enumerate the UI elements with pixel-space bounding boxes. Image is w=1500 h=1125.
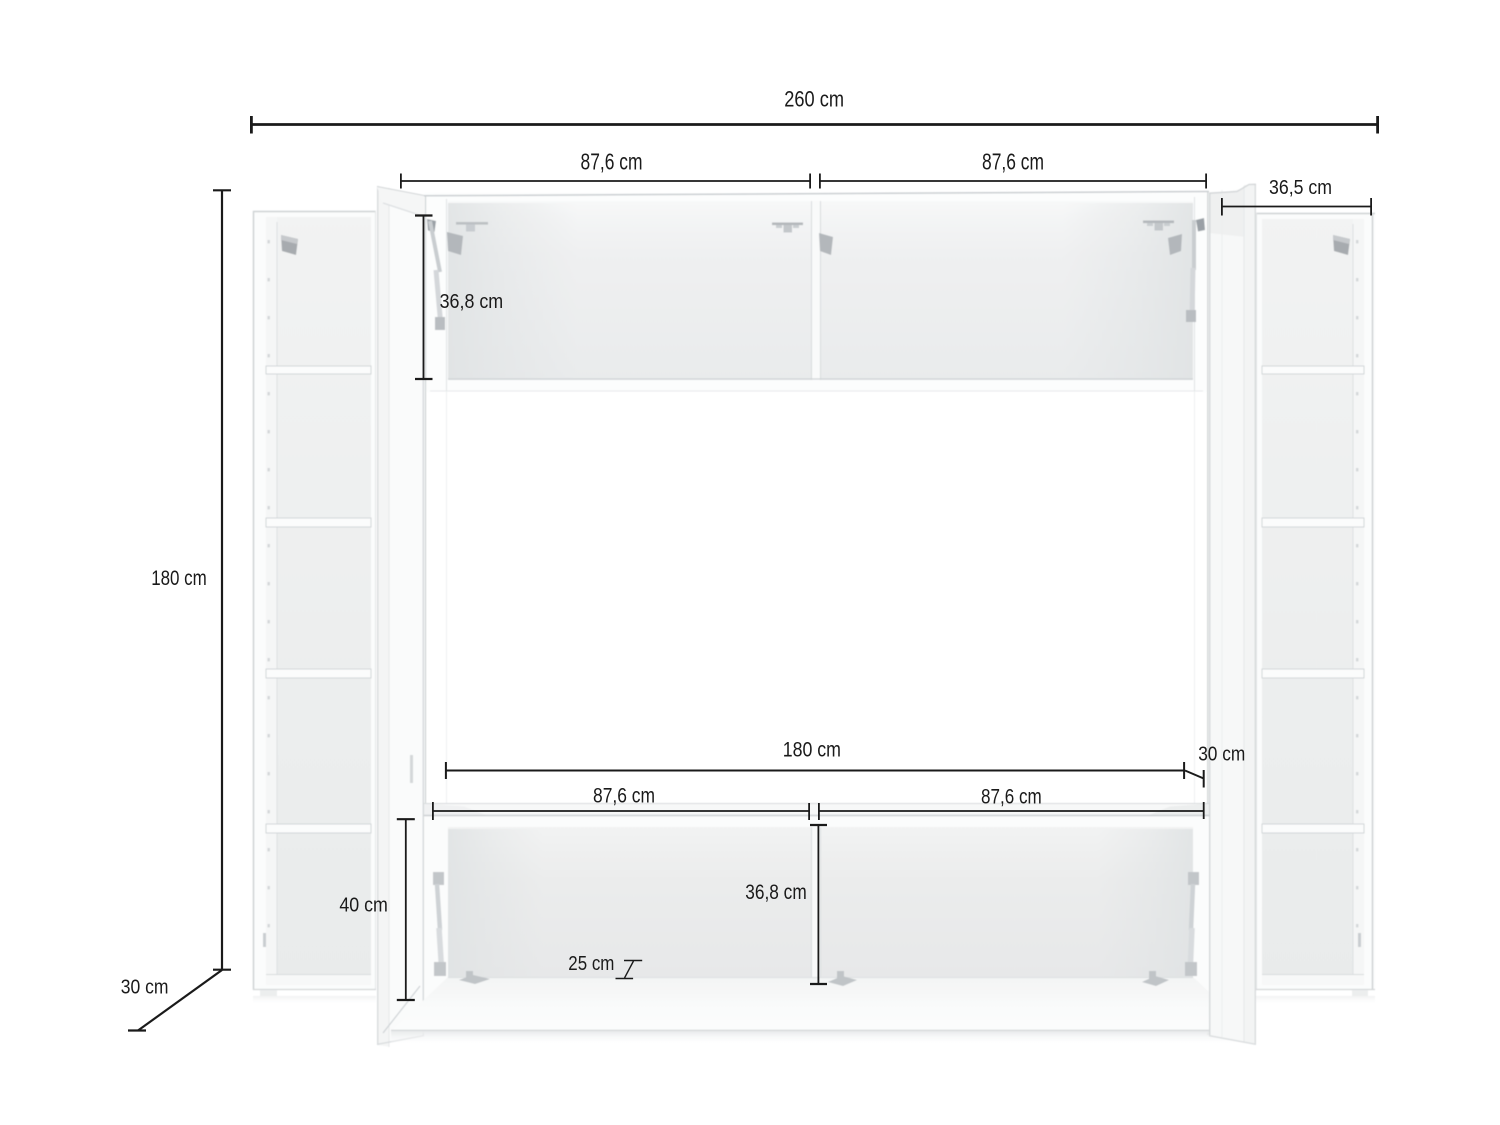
svg-text:30 cm: 30 cm	[121, 976, 169, 998]
svg-text:180 cm: 180 cm	[783, 739, 841, 762]
svg-text:87,6 cm: 87,6 cm	[593, 785, 655, 808]
svg-text:87,6 cm: 87,6 cm	[981, 786, 1042, 809]
svg-text:30 cm: 30 cm	[1198, 743, 1245, 765]
svg-text:36,8 cm: 36,8 cm	[440, 290, 504, 313]
svg-text:25 cm: 25 cm	[568, 952, 614, 975]
svg-text:180 cm: 180 cm	[151, 566, 207, 590]
svg-text:87,6 cm: 87,6 cm	[581, 149, 643, 175]
svg-text:36,8 cm: 36,8 cm	[745, 880, 806, 904]
svg-text:260 cm: 260 cm	[784, 87, 844, 112]
svg-text:87,6 cm: 87,6 cm	[982, 149, 1044, 175]
svg-text:40 cm: 40 cm	[339, 894, 388, 917]
svg-text:36,5 cm: 36,5 cm	[1269, 176, 1332, 199]
